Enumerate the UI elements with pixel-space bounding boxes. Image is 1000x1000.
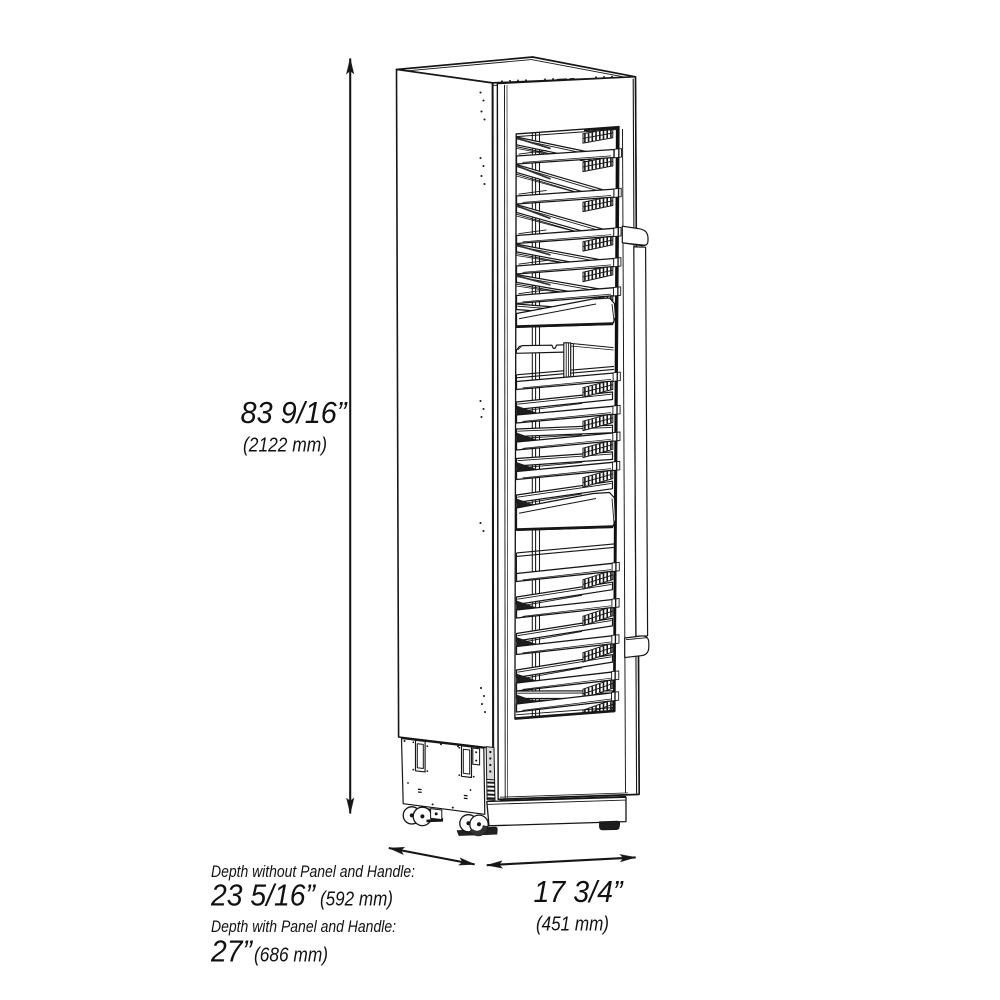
- svg-text:(2122 mm): (2122 mm): [243, 434, 327, 457]
- svg-text:(592 mm): (592 mm): [320, 888, 393, 911]
- svg-text:27”: 27”: [210, 934, 253, 969]
- svg-text:(451 mm): (451 mm): [536, 913, 609, 936]
- svg-text:83 9/16”: 83 9/16”: [241, 395, 349, 430]
- svg-text:17 3/4”: 17 3/4”: [534, 874, 625, 909]
- svg-text:23 5/16”: 23 5/16”: [210, 878, 316, 913]
- svg-text:(686 mm): (686 mm): [254, 944, 328, 967]
